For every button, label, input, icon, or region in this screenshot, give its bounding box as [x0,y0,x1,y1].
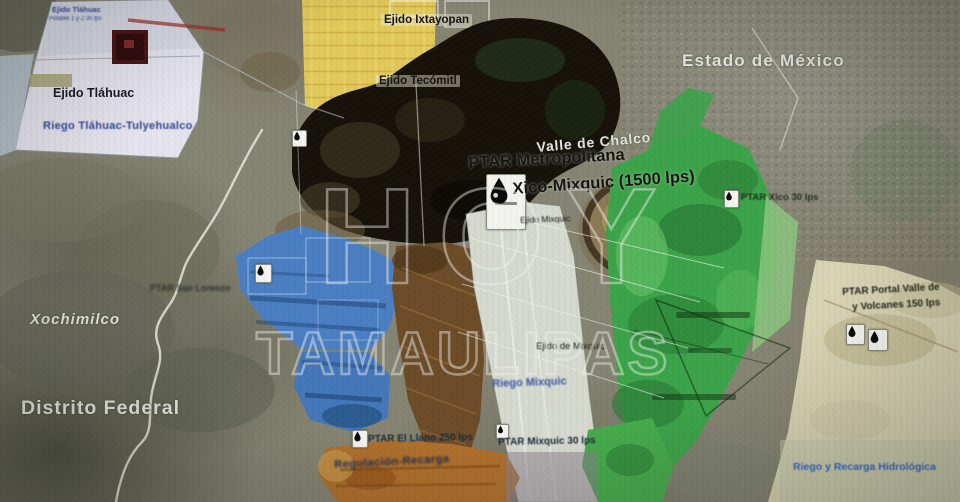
label-ejido-tlahuac: Ejido Tláhuac [53,87,134,100]
water-drop-icon [724,190,739,208]
label-riego-recarga: Riego y Recarga Hidrológica [793,462,936,473]
label-ejido-tlahuac-tiny-sub: Potable 1 y 2 30 lps [49,16,102,22]
label-distrito-federal: Distrito Federal [21,398,180,418]
watermark-tamaulipas: TAMAULIPAS [256,324,670,384]
water-drop-icon [292,130,307,147]
small-label-smudge [652,394,736,400]
small-label-smudge [688,348,732,353]
label-ejido-ixtayopan: Ejido Ixtayopan [381,14,472,26]
label-ejido-tecomitl: Ejido Tecómitl [376,75,460,87]
map-photo: Estado de México Valle de Chalco PTAR Me… [0,0,960,502]
watermark-hoy: HOY [318,168,679,304]
label-ptar-oeste: PTAR San Lorenzo [150,284,230,293]
water-drop-icon [255,264,272,283]
label-ptar-el-llano: PTAR El Llano 250 lps [368,433,473,445]
label-ptar-mixquic: PTAR Mixquic 30 lps [498,436,596,448]
small-label-smudge [676,312,750,318]
label-estado-de-mexico: Estado de México [682,52,845,70]
water-drop-icon [846,324,865,345]
water-drop-icon [868,329,888,351]
label-ejido-tlahuac-tiny: Ejido Tláhuac [52,6,101,14]
label-ptar-xico: PTAR Xico 30 lps [741,193,818,203]
water-drop-icon [352,430,368,448]
label-riego-tlahuac: Riego Tláhuac-Tulyehualco [43,121,193,133]
label-xochimilco: Xochimilco [30,312,120,328]
